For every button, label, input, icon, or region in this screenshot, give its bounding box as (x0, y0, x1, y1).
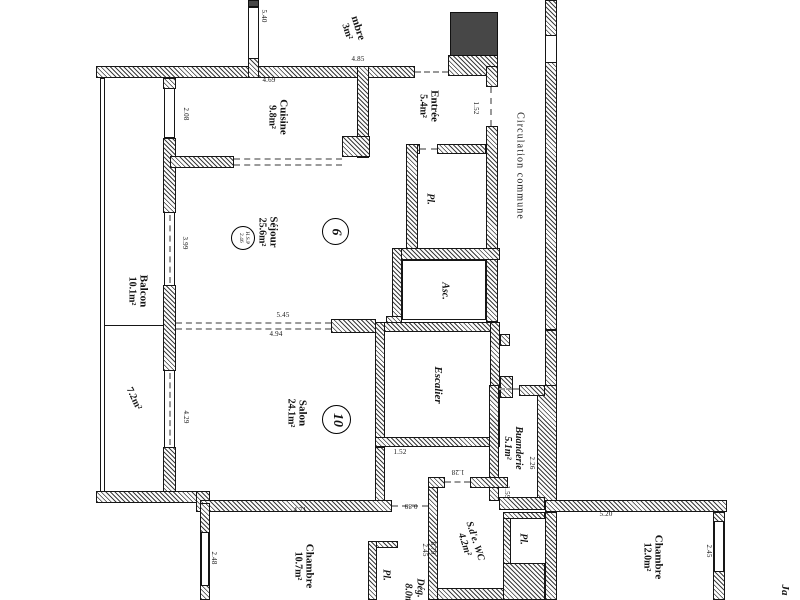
wall-segment (486, 66, 498, 87)
door-opening (420, 148, 437, 150)
window (201, 532, 209, 586)
room-label-balcon: Balcon 10.1m² (126, 275, 149, 307)
shaft-solid-block (450, 12, 498, 56)
wall-segment (248, 0, 259, 7)
floor-plan: mbre 3m² Cuisine 9.8m² Entrée 5.4m² Séjo… (0, 0, 800, 600)
dimension: 4.85 (351, 56, 364, 64)
wall-segment (248, 58, 259, 78)
room-name: Salon (295, 399, 307, 428)
wall-segment (545, 0, 557, 36)
wall-segment (406, 144, 418, 258)
wall-segment (428, 477, 438, 600)
room-name: Buanderie (512, 426, 523, 469)
wall-segment (545, 512, 557, 600)
entry-door-opening (490, 87, 492, 126)
wall-segment (392, 248, 402, 322)
room-label-chambre-sw: Chambre 10.7m² (292, 544, 315, 588)
lot-number: 6 (328, 228, 344, 235)
room-label-chambre-se: Chambre 12.0m² (641, 535, 664, 579)
door-opening (499, 388, 519, 390)
room-name: Chambre (651, 535, 663, 579)
ceiling-height: H.S.P 2.46 (237, 232, 249, 245)
wall-segment (331, 319, 376, 333)
room-label-salon: Salon 24.1m² (285, 399, 308, 428)
dimension: 5.45 (276, 312, 289, 320)
room-name: Cuisine (276, 99, 288, 134)
room-area: 12.0m² (641, 535, 652, 579)
wall-segment (392, 248, 500, 260)
lot-number-circle-10: 10 (322, 405, 351, 434)
wall-segment (545, 330, 557, 386)
room-label-buanderie: Buanderie 5.1m² (501, 426, 523, 469)
corridor-label: Circulation commune (514, 112, 525, 220)
wall-segment (163, 285, 176, 371)
window-glazing (169, 373, 171, 445)
wall-segment (500, 334, 510, 346)
sliding-partition (176, 322, 331, 330)
dimension: 0.89 (404, 501, 417, 509)
dimension: 1.28 (451, 467, 464, 475)
wall-segment (486, 126, 498, 322)
wall-segment (170, 156, 234, 168)
window-glazing (169, 215, 171, 283)
room-area: 5.1m² (501, 426, 512, 469)
room-label-escalier: Escalier (431, 366, 443, 403)
dimension: 4.71 (293, 507, 306, 515)
dimension: 2.45 (704, 544, 712, 557)
room-name: Balcon (136, 275, 148, 307)
room-label-placard-entree: Pl. (424, 193, 435, 204)
room-area: 10.1m² (126, 275, 137, 307)
wall-segment (375, 322, 385, 447)
room-area: 5.4m² (417, 90, 428, 122)
wall-segment (375, 437, 500, 447)
window (714, 521, 724, 572)
wall-segment (428, 477, 445, 488)
dimension: 1.52 (393, 449, 406, 457)
door-opening (415, 71, 448, 73)
room-area: 7.2m² (123, 386, 143, 412)
wall-segment (375, 447, 385, 503)
room-name: Séjour (266, 216, 278, 247)
room-area: 25.6m² (256, 216, 267, 247)
wall-segment (503, 563, 545, 600)
room-label-chambre-top: mbre 3m² (337, 15, 366, 46)
room-area: 9.8m² (266, 99, 277, 134)
dimension: 2.08 (181, 107, 189, 120)
lot-number-circle-6: 6 (322, 218, 349, 245)
balcony-edge (100, 78, 105, 492)
dimension: 5.20 (599, 511, 612, 519)
room-area-degagement: 8.0m² (402, 583, 413, 600)
door-opening (545, 36, 557, 62)
room-name: Chambre (302, 544, 314, 588)
wall-segment (342, 136, 370, 157)
room-label-ascenseur: Asc. (439, 282, 450, 300)
wall-segment (437, 588, 505, 600)
ceiling-height-circle: H.S.P 2.46 (231, 226, 255, 250)
dimension: 8.79 (428, 541, 436, 554)
wall-segment (499, 497, 545, 510)
dimension: 3.99 (180, 236, 188, 249)
door-opening (445, 481, 470, 483)
dimension: 2.48 (209, 551, 217, 564)
wall-segment (375, 322, 500, 332)
dimension: 2.45 (420, 543, 428, 556)
wall-segment (437, 144, 486, 154)
dimension: 4.29 (181, 410, 189, 423)
balcony-divider (105, 325, 163, 326)
lot-number: 10 (329, 413, 345, 427)
wall-segment (163, 138, 176, 213)
room-label-sejour: Séjour 25.6m² (256, 216, 279, 247)
wall-segment (545, 62, 557, 330)
wall-segment (503, 512, 545, 519)
wall-segment (368, 541, 377, 600)
room-area: 10.7m² (292, 544, 303, 588)
wall-segment (500, 376, 513, 398)
wall-segment (545, 500, 727, 512)
room-label-placard-sw: Pl. (380, 569, 391, 580)
window (248, 7, 259, 60)
dimension: 4.69 (262, 77, 275, 85)
room-label-sde-wc: S.d'e. WC 4.2m² (452, 520, 485, 565)
window (164, 88, 175, 138)
room-label-terrasse: 7.2m² (123, 386, 143, 412)
room-label-entree: Entrée 5.4m² (417, 90, 440, 122)
dimension: 5.40 (259, 9, 267, 22)
garden-label: Ja (778, 585, 790, 596)
room-area: 24.1m² (285, 399, 296, 428)
wall-segment (537, 385, 557, 501)
hsp-value: 2.46 (237, 232, 243, 245)
room-name: Entrée (427, 90, 439, 122)
room-label-placard-se: Pl. (517, 533, 528, 544)
sliding-partition (234, 158, 342, 166)
dimension: 1.59 (502, 485, 510, 498)
room-label-cuisine: Cuisine 9.8m² (266, 99, 289, 134)
dimension: 4.94 (269, 331, 282, 339)
wall-segment (96, 491, 205, 503)
wall-segment (503, 512, 511, 564)
wall-segment (519, 385, 545, 396)
dimension: 2.26 (527, 456, 535, 469)
room-label-degagement: Dég. (414, 578, 425, 597)
dimension: 1.52 (471, 101, 479, 114)
